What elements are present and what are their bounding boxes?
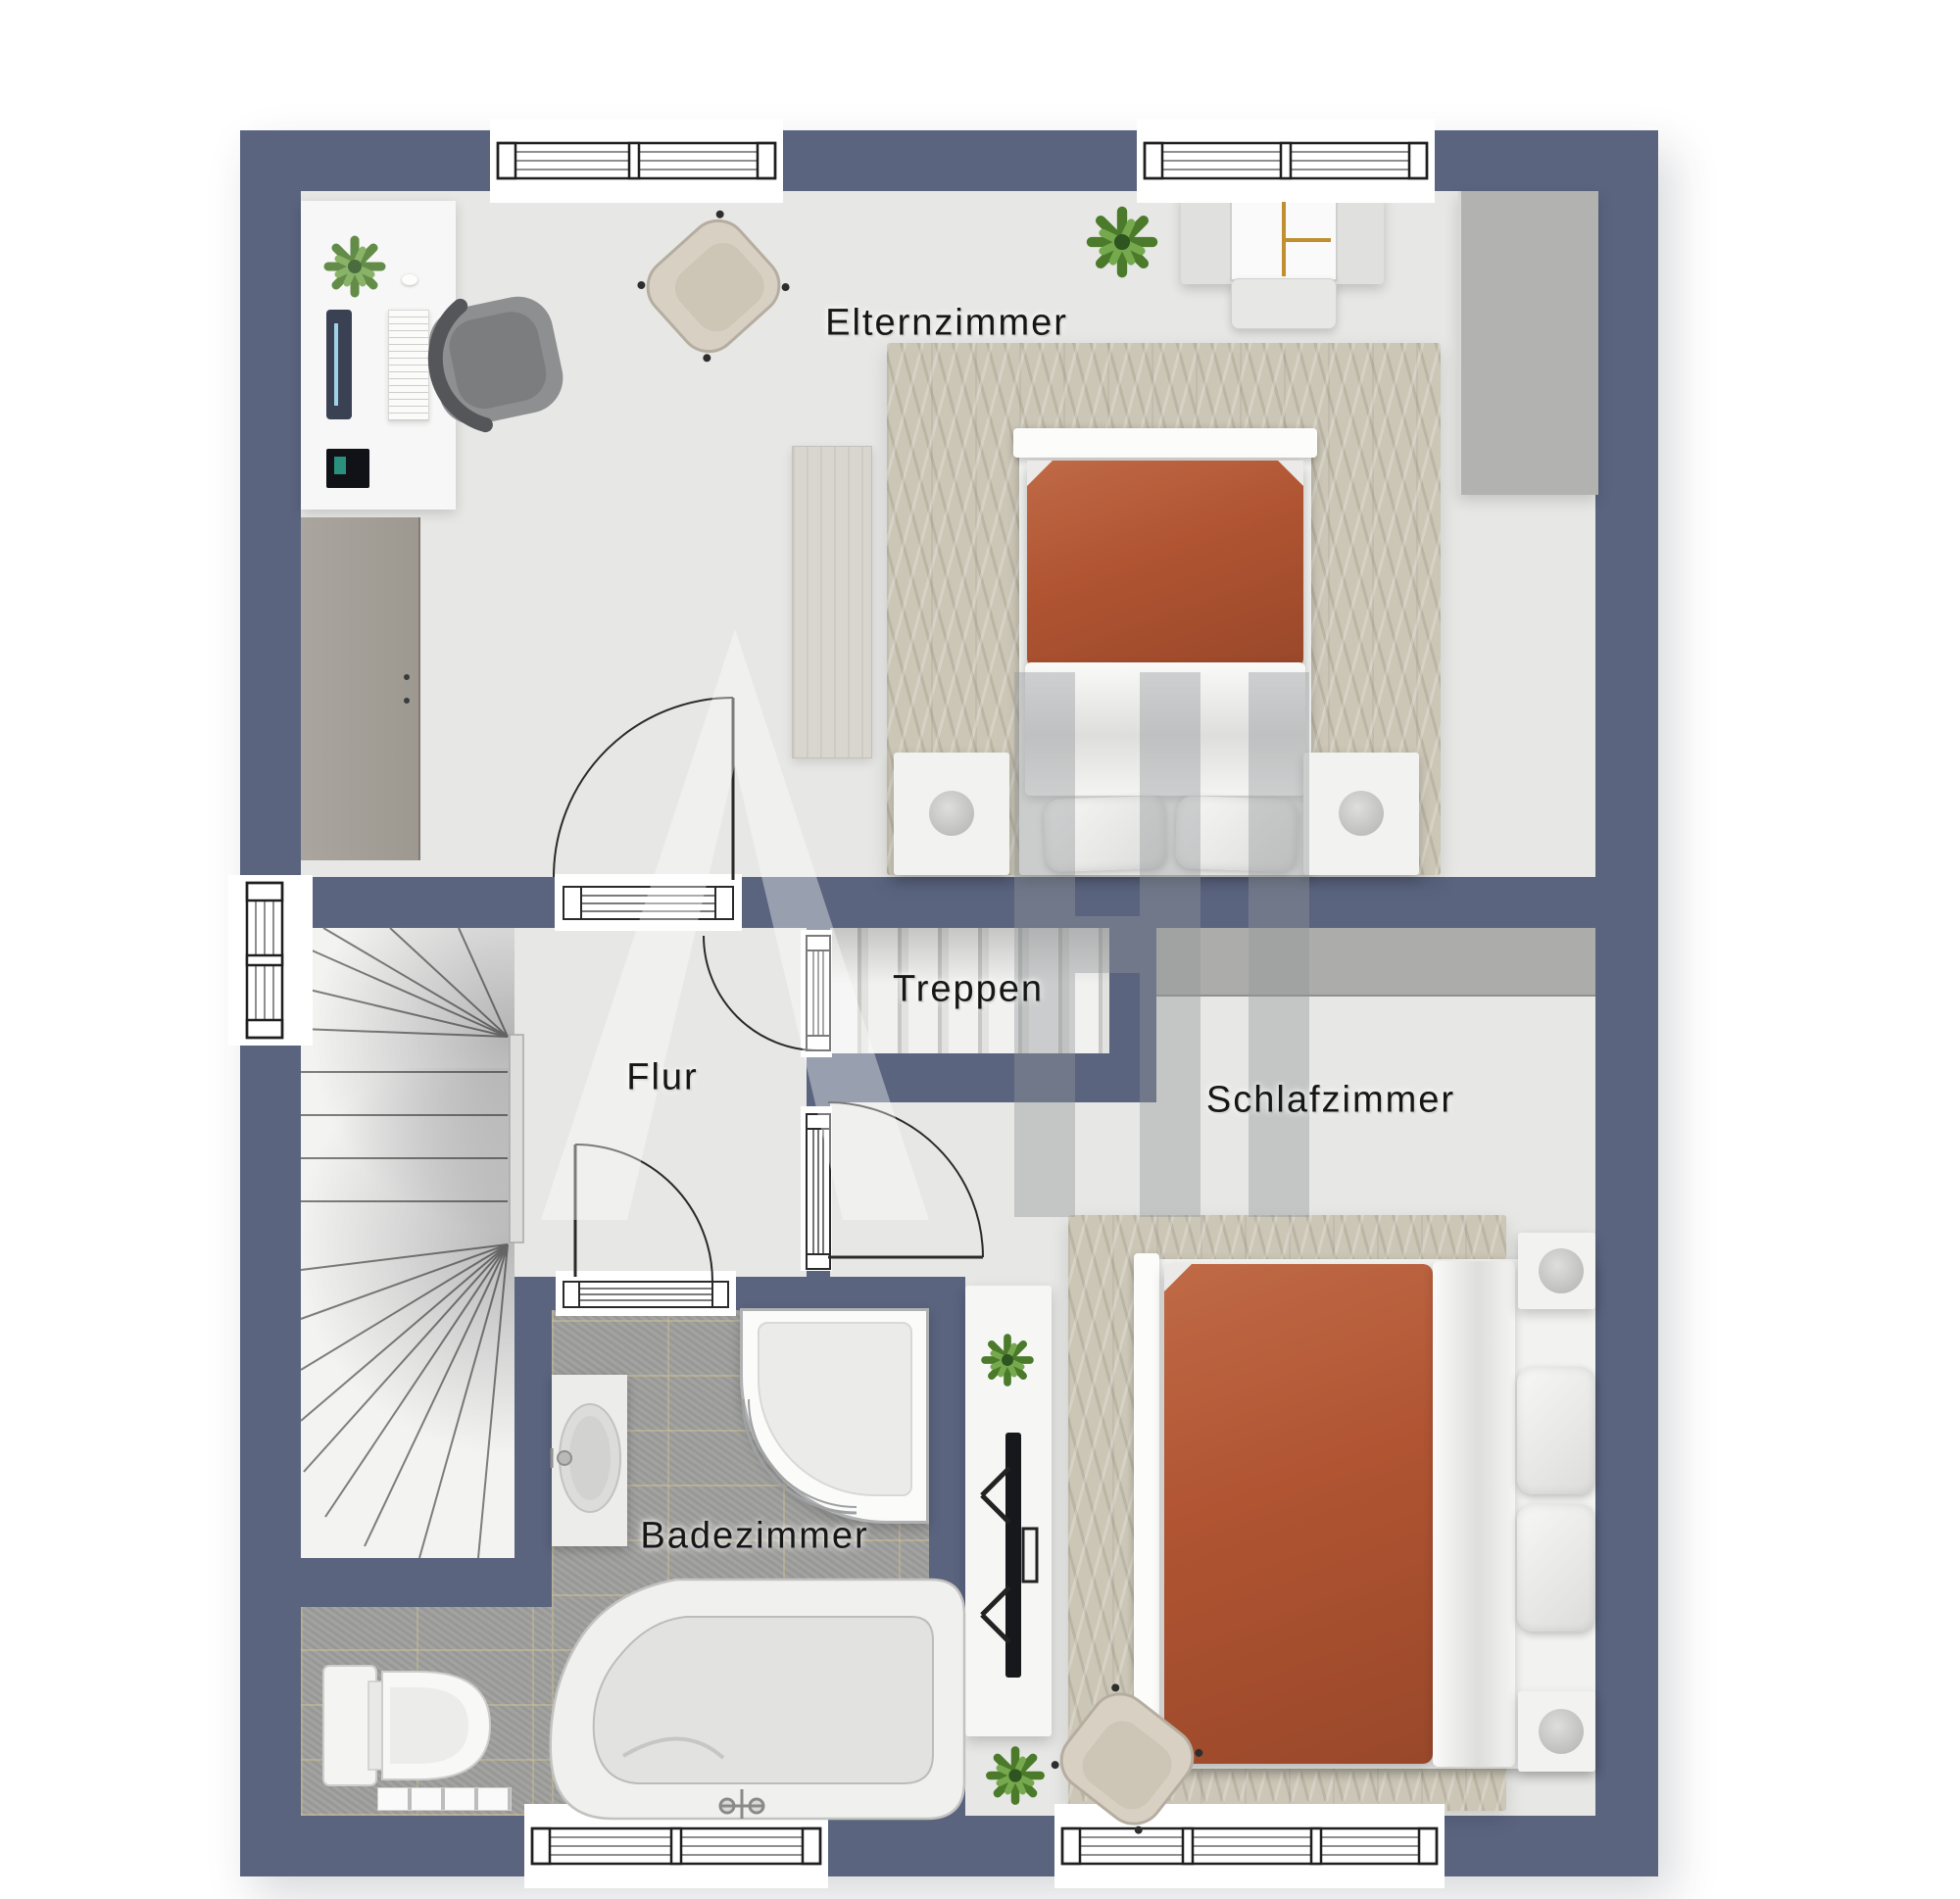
armchair-elternzimmer (636, 209, 791, 364)
bathtub (551, 1580, 964, 1819)
stair-handrail (510, 1035, 523, 1242)
room-label-treppen: Treppen (893, 969, 1044, 1011)
floor-plan-page: Elternzimmer Treppen Flur Schlafzimmer B… (0, 0, 1960, 1899)
staircase-main (301, 928, 523, 1558)
window-top-right (1137, 119, 1435, 203)
room-label-flur: Flur (626, 1057, 698, 1099)
tv (982, 1433, 1037, 1678)
window-top-left (490, 119, 783, 203)
plant-desk-icon (328, 240, 381, 293)
crib-frame-lines (1284, 202, 1331, 276)
room-label-schlafzimmer: Schlafzimmer (1206, 1080, 1455, 1122)
room-label-badezimmer: Badezimmer (640, 1516, 868, 1558)
office-chair (422, 288, 570, 433)
plant-console-icon (985, 1338, 1030, 1383)
window-left-stairwell (228, 875, 313, 1046)
plan-linework (0, 0, 1960, 1899)
shower-glass-edge (743, 1399, 857, 1513)
room-label-elternzimmer: Elternzimmer (825, 303, 1068, 345)
plant-schlafzimmer-icon (990, 1750, 1040, 1800)
plant-elternzimmer-icon (1092, 212, 1152, 272)
sink (552, 1404, 620, 1512)
toilet (323, 1666, 490, 1785)
